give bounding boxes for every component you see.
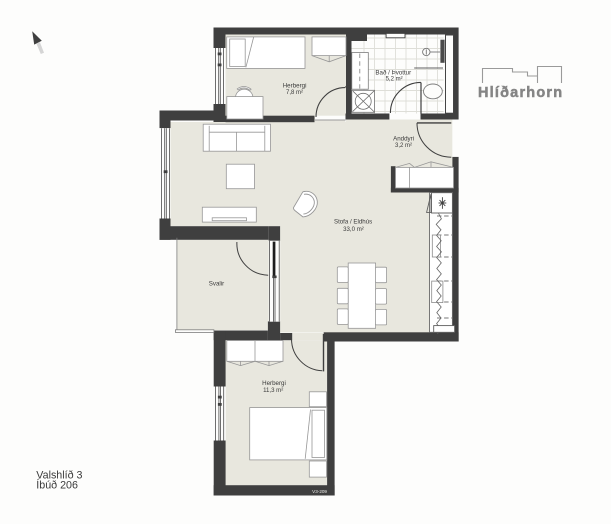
svg-text:Svalir: Svalir [209,280,224,287]
svg-text:Hlíðarhorn: Hlíðarhorn [478,85,563,101]
svg-text:Íbúð 206: Íbúð 206 [36,479,78,492]
svg-text:Stofa / Eldhús: Stofa / Eldhús [334,219,372,226]
svg-text:Anddyri: Anddyri [393,135,414,142]
svg-text:Herbergi: Herbergi [283,82,307,89]
svg-text:Herbergi: Herbergi [262,380,286,387]
svg-text:5,2 m²: 5,2 m² [386,77,403,83]
svg-text:Bað / Þvottur: Bað / Þvottur [375,70,411,77]
svg-text:3,2 m²: 3,2 m² [395,143,412,149]
svg-text:33,0 m²: 33,0 m² [343,226,364,233]
svg-text:V3-209: V3-209 [312,489,327,494]
svg-text:7,8 m²: 7,8 m² [286,90,303,96]
svg-text:11,3 m²: 11,3 m² [263,387,283,394]
